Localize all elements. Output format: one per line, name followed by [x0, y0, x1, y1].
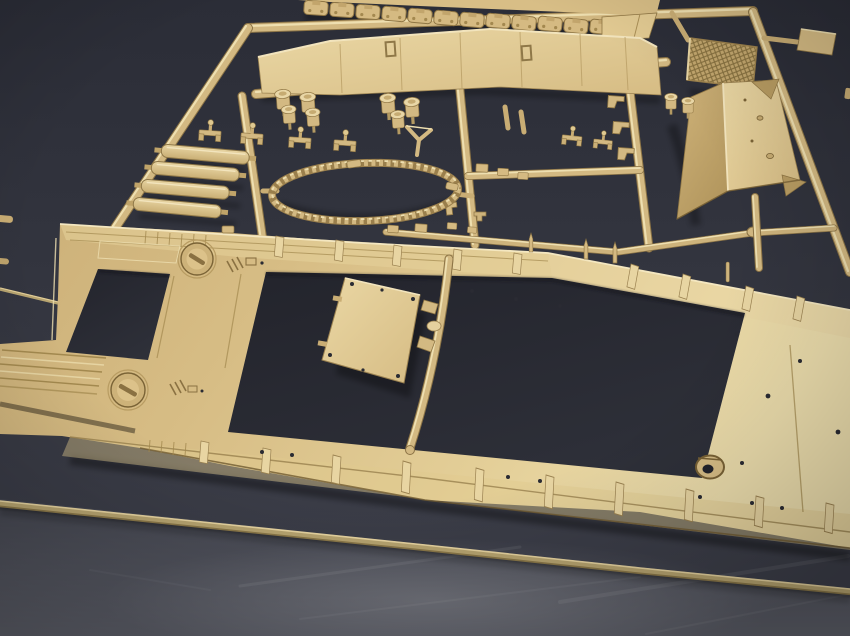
- sprue-photo-recreation: [0, 0, 850, 636]
- vignette: [0, 0, 850, 636]
- photo-model-kit-sprue: [0, 0, 850, 636]
